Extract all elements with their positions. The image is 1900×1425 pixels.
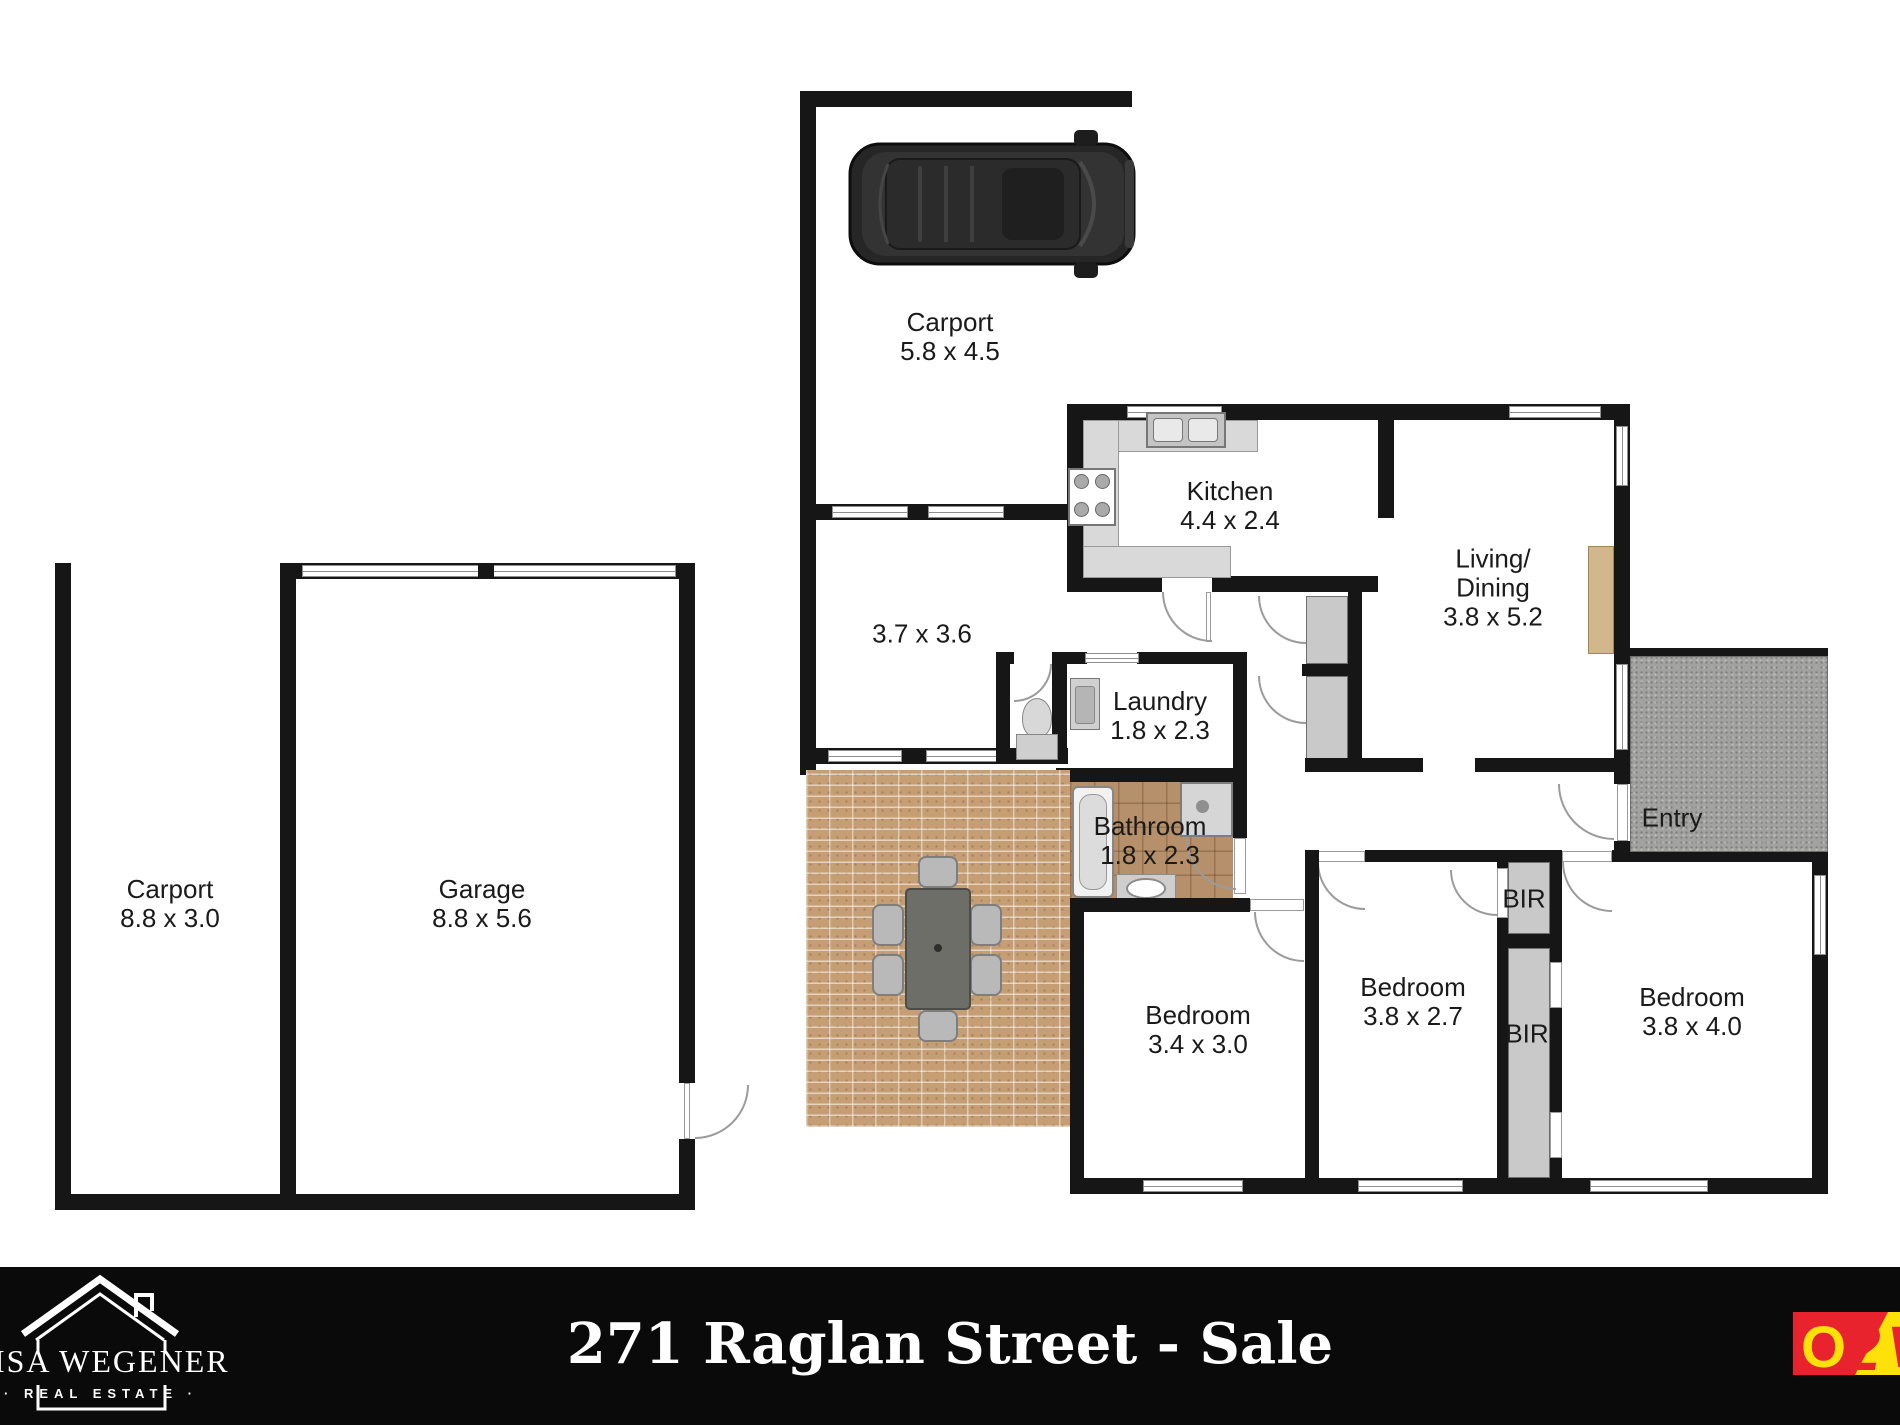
window bbox=[926, 750, 1000, 762]
window bbox=[1509, 406, 1601, 418]
wall bbox=[1056, 898, 1250, 912]
chair-icon bbox=[918, 1010, 958, 1042]
chair-icon bbox=[872, 954, 904, 996]
room-label-bir-upper: BIR bbox=[1502, 885, 1545, 914]
wall bbox=[1233, 768, 1247, 838]
stove-burner bbox=[1074, 474, 1089, 489]
wall bbox=[1365, 850, 1562, 862]
room-label-bedroom-2: Bedroom3.8 x 2.7 bbox=[1360, 973, 1466, 1031]
wall bbox=[1067, 652, 1087, 664]
basin-fixture bbox=[1126, 878, 1166, 899]
car-icon bbox=[842, 128, 1142, 280]
kitchen-sink-bowl bbox=[1153, 418, 1183, 442]
wall bbox=[1305, 850, 1319, 1178]
room-label-garage: Garage8.8 x 5.6 bbox=[432, 875, 532, 933]
window bbox=[1143, 1180, 1243, 1192]
wall bbox=[1302, 664, 1348, 676]
window bbox=[1616, 426, 1628, 486]
bedroom1-door bbox=[1250, 899, 1304, 911]
door-swing-arc bbox=[1014, 664, 1052, 702]
chair-icon bbox=[918, 856, 958, 888]
door-swing-arc bbox=[1258, 676, 1306, 724]
wall bbox=[1630, 648, 1828, 656]
agency-name: LISA WEGENER bbox=[0, 1343, 230, 1379]
stove-burner bbox=[1095, 474, 1110, 489]
stove-burner bbox=[1095, 502, 1110, 517]
stove-burner bbox=[1074, 502, 1089, 517]
room-label-carport-left: Carport8.8 x 3.0 bbox=[120, 875, 220, 933]
provider-letter-2: 2 bbox=[1844, 1312, 1881, 1375]
table-umbrella-hole bbox=[934, 944, 942, 952]
room-label-bathroom: Bathroom1.8 x 2.3 bbox=[1094, 812, 1207, 870]
room-label-laundry: Laundry1.8 x 2.3 bbox=[1110, 687, 1210, 745]
bir-lower-door bbox=[1550, 962, 1562, 1008]
door-swing-arc bbox=[1254, 912, 1304, 962]
wall bbox=[1137, 652, 1247, 664]
chair-icon bbox=[872, 904, 904, 946]
wall bbox=[55, 1194, 695, 1210]
bedroom2-door bbox=[1318, 851, 1365, 862]
room-label-3-7: 3.7 x 3.6 bbox=[872, 620, 972, 649]
room-label-living-dining: Living/Dining3.8 x 5.2 bbox=[1443, 545, 1543, 632]
door-swing-arc bbox=[1562, 862, 1612, 912]
chair-icon bbox=[970, 904, 1002, 946]
window bbox=[828, 750, 902, 762]
agency-tagline: · REAL ESTATE · bbox=[4, 1386, 198, 1401]
door-swing-arc bbox=[1450, 870, 1497, 916]
wall bbox=[996, 652, 1010, 764]
wall bbox=[1378, 420, 1394, 518]
bedroom3-door bbox=[1562, 851, 1612, 862]
wall bbox=[1305, 758, 1423, 772]
floorplan-page: Carport5.8 x 4.5 3.7 x 3.6 Kitchen4.4 x … bbox=[0, 0, 1900, 1425]
chair-icon bbox=[970, 954, 1002, 996]
door-swing-arc bbox=[1258, 596, 1306, 644]
wall bbox=[55, 563, 71, 1210]
garage-door-marker bbox=[478, 563, 494, 578]
wall bbox=[1348, 592, 1362, 772]
window bbox=[1085, 653, 1139, 663]
wall bbox=[280, 563, 296, 1194]
room-label-carport-top: Carport5.8 x 4.5 bbox=[900, 308, 1000, 366]
room-label-bedroom-3: Bedroom3.8 x 4.0 bbox=[1639, 983, 1745, 1041]
room-label-bedroom-1: Bedroom3.4 x 3.0 bbox=[1145, 1001, 1251, 1059]
sideboard-fixture bbox=[1588, 546, 1614, 654]
garage-side-door bbox=[684, 1083, 690, 1139]
wall bbox=[996, 652, 1014, 664]
kitchen-counter bbox=[1083, 546, 1231, 578]
provider-logo: O 2 V bbox=[1793, 1312, 1900, 1375]
toilet-fixture bbox=[1022, 698, 1052, 738]
toilet-cistern bbox=[1016, 734, 1058, 760]
provider-letter-v: V bbox=[1887, 1315, 1900, 1375]
hall-closet bbox=[1306, 676, 1348, 760]
bir-lower-door bbox=[1550, 1112, 1562, 1158]
window bbox=[928, 506, 1004, 518]
window bbox=[1814, 875, 1826, 955]
door-swing-arc bbox=[1162, 592, 1212, 642]
wall bbox=[1475, 758, 1630, 772]
provider-letter-o: O bbox=[1801, 1315, 1846, 1375]
wall bbox=[1056, 768, 1247, 782]
agency-logo: LISA WEGENER · REAL ESTATE · bbox=[0, 1267, 260, 1425]
wall bbox=[1067, 576, 1162, 592]
wall bbox=[800, 91, 816, 775]
wall bbox=[1070, 898, 1084, 1194]
window bbox=[1616, 664, 1628, 750]
wall bbox=[1212, 576, 1378, 592]
footer-bar: 271 Raglan Street - Sale LISA WEGENER · … bbox=[0, 1267, 1900, 1425]
room-label-bir-lower: BIR bbox=[1505, 1020, 1548, 1049]
wall bbox=[800, 91, 1132, 107]
window bbox=[832, 506, 908, 518]
laundry-trough-basin bbox=[1075, 686, 1095, 724]
wall bbox=[1497, 948, 1508, 1178]
window bbox=[1590, 1180, 1708, 1192]
front-door bbox=[1617, 784, 1628, 841]
hall-closet bbox=[1306, 596, 1348, 664]
door-swing-arc bbox=[1317, 862, 1365, 910]
room-label-entry: Entry bbox=[1642, 804, 1703, 833]
door-swing-arc bbox=[695, 1085, 749, 1139]
window bbox=[1358, 1180, 1463, 1192]
room-label-kitchen: Kitchen4.4 x 2.4 bbox=[1180, 477, 1280, 535]
wall bbox=[1233, 652, 1247, 768]
bir-lower-closet bbox=[1508, 948, 1550, 1178]
door-swing-arc bbox=[1558, 784, 1614, 840]
address-title: 271 Raglan Street - Sale bbox=[0, 1311, 1900, 1377]
kitchen-sink-bowl bbox=[1188, 418, 1218, 442]
wall bbox=[1497, 850, 1508, 870]
